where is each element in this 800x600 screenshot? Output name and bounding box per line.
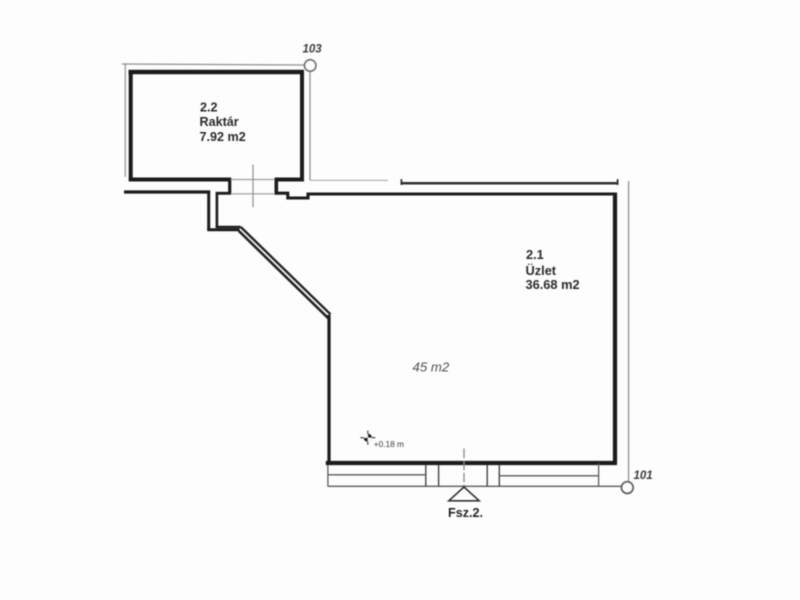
svg-text:Raktár: Raktár [200, 115, 239, 129]
svg-text:103: 103 [303, 44, 323, 56]
svg-text:+0.18 m: +0.18 m [374, 439, 404, 449]
svg-text:101: 101 [634, 470, 653, 482]
svg-text:2.1: 2.1 [526, 247, 544, 262]
svg-text:36.68 m2: 36.68 m2 [526, 277, 580, 292]
svg-text:Üzlet: Üzlet [526, 263, 557, 278]
svg-text:Fsz.2.: Fsz.2. [448, 506, 483, 520]
svg-text:7.92 m2: 7.92 m2 [200, 130, 246, 144]
svg-text:2.2: 2.2 [200, 100, 218, 114]
svg-text:45 m2: 45 m2 [413, 360, 450, 375]
